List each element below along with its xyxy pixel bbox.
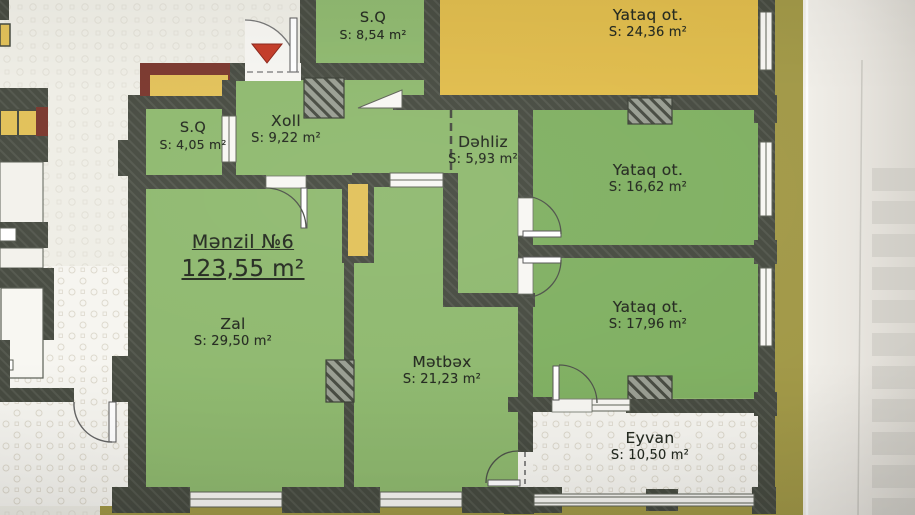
room-yataq-mid [533,110,758,246]
opening-xoll-metbex [390,173,443,187]
window-right-1 [760,12,772,70]
window-eyvan-top [592,399,630,411]
wall-yataq-top-bottom [428,95,758,110]
duct-shaft [348,184,368,256]
floorplan-photo: S.Q S: 8,54 m² Yataq ot. S: 24,36 m² S.Q… [0,0,915,515]
room-yataq-top [440,0,758,96]
window-bottom-2 [380,492,462,507]
balcony-rail [534,494,754,506]
vent-shaft-block-2 [628,376,672,401]
window-right-2 [760,142,772,216]
vent-shaft-block [628,98,672,124]
pillar-block [304,78,344,118]
floorplan-svg [0,0,915,515]
window-right-3 [760,268,772,346]
entry-door [245,18,301,81]
window-bottom-1 [190,492,282,507]
page-edge-and-render [803,0,915,515]
pillar-block-2 [326,360,354,402]
wall-bedroom-divider [518,245,776,258]
wall-left-exterior [128,95,146,505]
door-sq-left [222,116,236,162]
